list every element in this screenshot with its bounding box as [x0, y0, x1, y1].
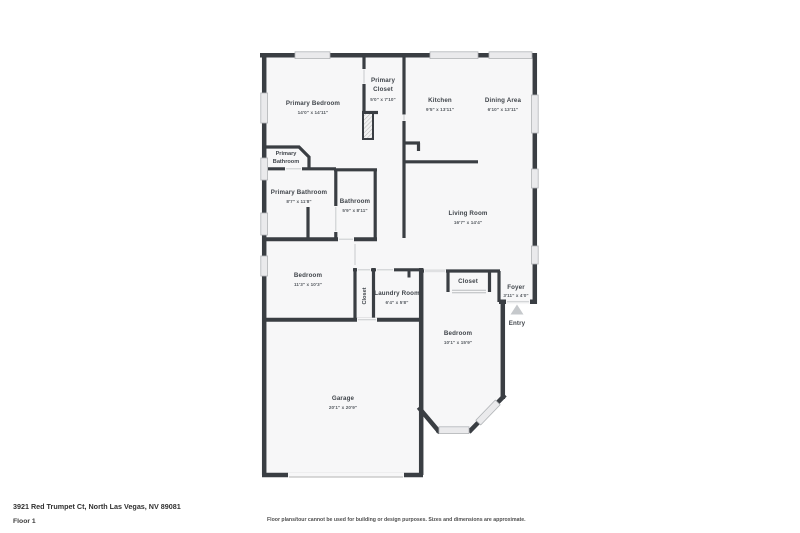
room-label-bedroom-front: Bedroom	[444, 330, 473, 337]
room-label-hall-closet: Closet	[362, 287, 368, 304]
window	[261, 158, 268, 180]
entry-label: Entry	[509, 320, 526, 327]
room-label-bedroom-small: Bedroom	[294, 272, 323, 279]
room-label-laundry-room: Laundry Room	[374, 290, 420, 297]
room-dims-foyer: 3'11" x 4'0"	[503, 293, 528, 298]
room-dims-laundry-room: 6'4" x 5'8"	[386, 300, 409, 305]
room-label-foyer: Foyer	[507, 284, 525, 291]
floorplan-page: Primary Bedroom 14'0" x 14'11" Primary C…	[0, 0, 800, 533]
window	[439, 427, 469, 434]
room-dims-garage: 20'1" x 20'9"	[329, 405, 357, 410]
room-label-garage: Garage	[332, 395, 355, 402]
room-label-primary-bathroom-wc-1: Primary	[276, 151, 298, 157]
room-dims-bedroom-small: 11'3" x 10'3"	[294, 282, 322, 287]
window	[261, 256, 268, 276]
room-dims-primary-bathroom: 8'7" x 11'8"	[286, 199, 311, 204]
window	[430, 52, 478, 59]
room-label-primary-closet-2: Closet	[373, 86, 393, 93]
room-dims-primary-bedroom: 14'0" x 14'11"	[298, 110, 329, 115]
window	[531, 246, 538, 264]
address-text: 3921 Red Trumpet Ct, North Las Vegas, NV…	[13, 502, 181, 511]
room-label-kitchen: Kitchen	[428, 97, 452, 104]
window	[531, 95, 538, 133]
window	[261, 93, 268, 123]
room-dims-living-room: 16'7" x 14'4"	[454, 220, 482, 225]
window	[489, 52, 532, 59]
entry-arrow-icon	[511, 305, 524, 315]
room-label-dining-area: Dining Area	[485, 97, 522, 104]
floorplan-drawing: Primary Bedroom 14'0" x 14'11" Primary C…	[0, 0, 800, 533]
room-label-bedroom-closet: Closet	[458, 278, 478, 285]
room-dims-bathroom: 5'9" x 8'11"	[342, 208, 367, 213]
window	[531, 169, 538, 188]
room-dims-kitchen: 9'5" x 13'11"	[426, 107, 454, 112]
floor-label: Floor 1	[13, 518, 36, 525]
footer: 3921 Red Trumpet Ct, North Las Vegas, NV…	[13, 502, 526, 525]
room-dims-dining-area: 6'10" x 13'11"	[488, 107, 519, 112]
window	[295, 52, 330, 59]
room-dims-bedroom-front: 10'1" x 15'9"	[444, 340, 472, 345]
room-label-primary-closet-1: Primary	[371, 77, 396, 84]
room-label-bathroom: Bathroom	[340, 198, 371, 205]
disclaimer-text: Floor plans/tour cannot be used for buil…	[267, 517, 526, 523]
utility-shaft-hatch	[363, 113, 373, 139]
room-dims-primary-closet: 5'0" x 7'10"	[370, 97, 396, 102]
room-label-primary-bathroom-wc-2: Bathroom	[273, 159, 299, 165]
room-label-living-room: Living Room	[448, 210, 487, 217]
window	[261, 213, 268, 235]
room-label-primary-bathroom: Primary Bathroom	[271, 189, 328, 196]
room-label-primary-bedroom: Primary Bedroom	[286, 100, 341, 107]
room-floor-fills	[262, 53, 537, 477]
